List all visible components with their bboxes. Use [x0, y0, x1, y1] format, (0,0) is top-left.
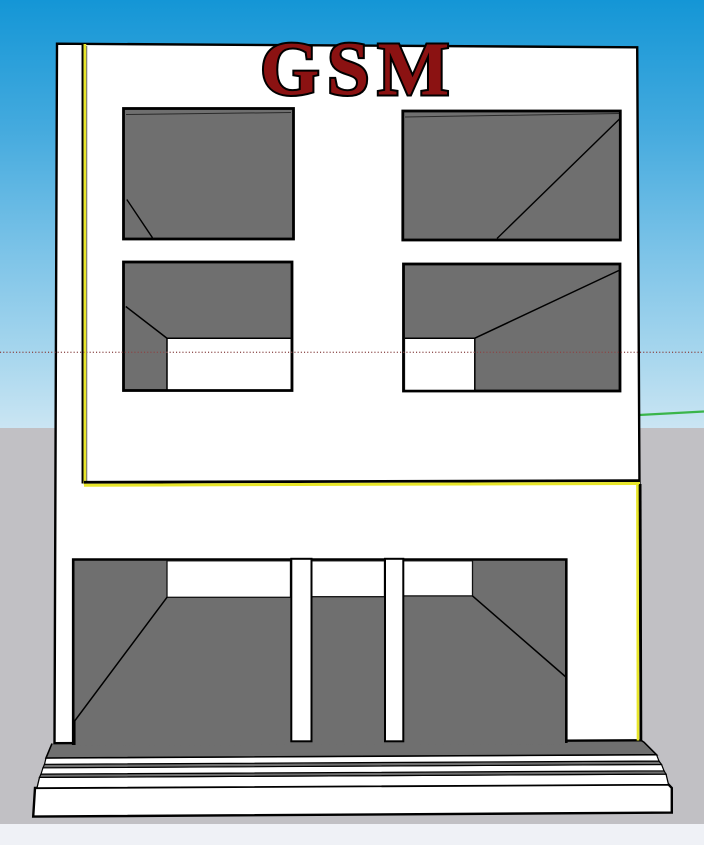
svg-text:S: S: [327, 28, 369, 112]
svg-text:M: M: [378, 28, 450, 112]
svg-text:G: G: [260, 28, 319, 112]
